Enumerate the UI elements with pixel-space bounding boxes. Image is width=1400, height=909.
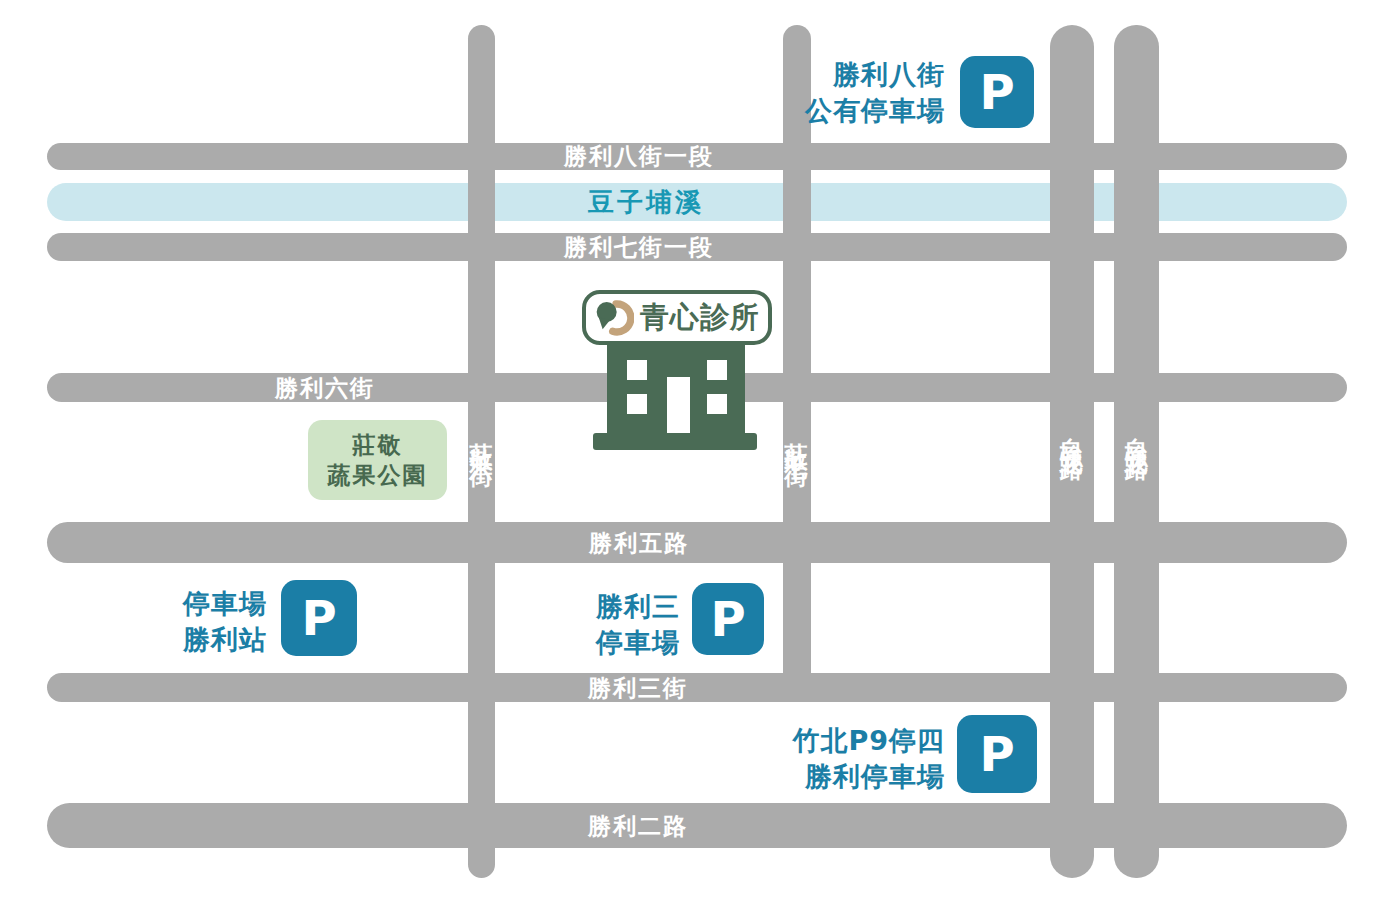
park-label-line2: 蔬果公園: [328, 460, 428, 490]
parking-label-shengli-station: 停車場 勝利站: [183, 586, 267, 658]
road-label-shengli-8th-st-sec1: 勝利八街一段: [564, 141, 714, 172]
clinic-window: [627, 394, 647, 414]
road-label-shengli-5th-rd: 勝利五路: [589, 528, 689, 559]
clinic-door: [667, 377, 690, 434]
clinic-name: 青心診所: [640, 298, 760, 338]
road-label-shengli-2nd-rd: 勝利二路: [588, 811, 688, 842]
road-label-shengli-6th-st: 勝利六街: [275, 373, 375, 404]
parking-label-zhubei-p9: 竹北P9停四 勝利停車場: [792, 723, 945, 795]
clinic-window: [627, 360, 647, 380]
parking-icon-shengli-station: P: [281, 580, 357, 656]
parking-label-shengli-8th-public: 勝利八街 公有停車場: [805, 57, 945, 129]
clinic-building: [607, 344, 745, 434]
road-label-zhuangjing-6th-st: 莊敬六街: [467, 424, 498, 452]
clinic-sign: 青心診所: [582, 290, 772, 345]
clinic-building-base: [593, 433, 757, 450]
road-label-shengli-7th-st-sec1: 勝利七街一段: [564, 232, 714, 263]
river-label: 豆子埔溪: [588, 185, 704, 220]
road-label-ziqiang-n-rd-west: 自強北路: [1057, 418, 1088, 446]
clinic-window: [707, 394, 727, 414]
road-ziqiang-n-rd-east: [1114, 25, 1159, 878]
park-label-line1: 莊敬: [353, 430, 403, 460]
road-label-zhuangjing-7th-st: 莊敬七街: [782, 424, 813, 452]
clinic-logo-heart-icon: [594, 299, 634, 337]
clinic-window: [707, 360, 727, 380]
road-label-ziqiang-n-rd-east: 自強北路: [1122, 418, 1153, 446]
clinic-area-map: 豆子埔溪 勝利八街一段 勝利七街一段 勝利六街 勝利五路 勝利三街 勝利二路 莊…: [0, 0, 1400, 909]
road-ziqiang-n-rd-west: [1050, 25, 1094, 878]
zhuangjing-produce-park: 莊敬 蔬果公園: [308, 420, 447, 500]
road-label-shengli-3rd-st: 勝利三街: [588, 673, 688, 704]
parking-icon-shengli-8th-public: P: [960, 56, 1034, 128]
parking-icon-shengli-3: P: [692, 583, 764, 655]
parking-label-shengli-3: 勝利三 停車場: [596, 589, 680, 661]
parking-icon-zhubei-p9: P: [957, 715, 1037, 793]
